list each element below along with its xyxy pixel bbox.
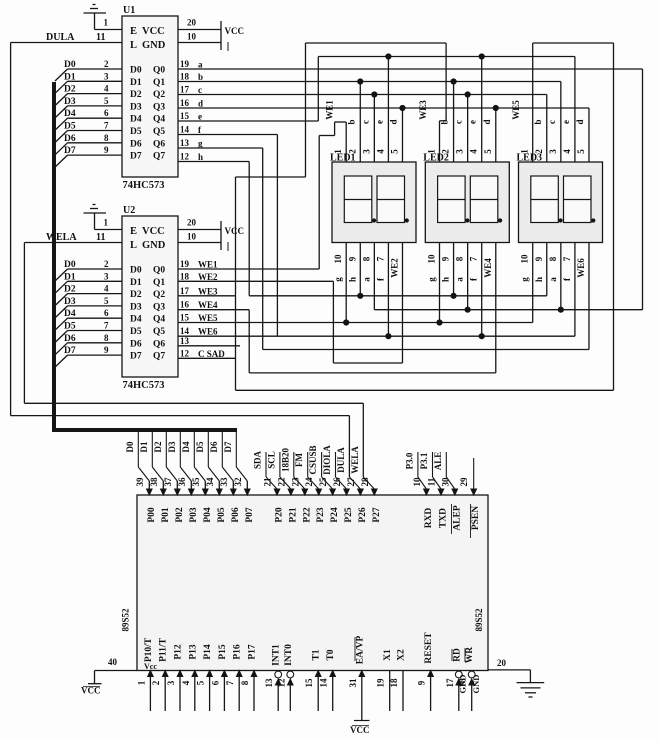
- svg-text:19: 19: [180, 259, 190, 269]
- svg-text:3: 3: [548, 149, 558, 154]
- svg-text:1: 1: [136, 680, 146, 685]
- svg-text:D2: D2: [153, 441, 163, 452]
- svg-text:P02: P02: [175, 507, 185, 523]
- svg-text:VCC: VCC: [350, 725, 370, 735]
- svg-text:b: b: [346, 119, 356, 124]
- svg-text:FM: FM: [294, 453, 304, 467]
- svg-text:D6: D6: [130, 139, 142, 149]
- svg-text:WELA: WELA: [46, 232, 77, 243]
- svg-text:D1: D1: [64, 72, 76, 82]
- svg-text:D7: D7: [64, 146, 76, 156]
- svg-text:WE6: WE6: [198, 327, 218, 337]
- svg-text:19: 19: [180, 59, 190, 69]
- svg-text:8: 8: [240, 680, 250, 685]
- svg-text:4: 4: [104, 284, 109, 294]
- svg-text:39: 39: [135, 477, 145, 487]
- svg-text:P01: P01: [161, 507, 171, 523]
- svg-text:25: 25: [318, 477, 328, 487]
- svg-text:a: a: [361, 277, 371, 282]
- svg-text:36: 36: [177, 477, 187, 487]
- svg-text:1: 1: [520, 149, 530, 154]
- svg-text:Q1: Q1: [153, 78, 165, 88]
- svg-text:D7: D7: [64, 346, 76, 356]
- svg-text:P05: P05: [217, 507, 227, 523]
- svg-text:3: 3: [361, 149, 371, 154]
- svg-text:U2: U2: [123, 205, 135, 216]
- svg-text:10: 10: [187, 232, 197, 242]
- svg-text:D0: D0: [64, 60, 76, 70]
- svg-text:38: 38: [149, 477, 159, 487]
- svg-text:P06: P06: [231, 507, 241, 523]
- svg-text:P26: P26: [358, 507, 368, 523]
- svg-text:8: 8: [104, 133, 109, 143]
- svg-text:D6: D6: [130, 339, 142, 349]
- svg-text:7: 7: [104, 121, 109, 131]
- svg-text:D2: D2: [64, 285, 76, 295]
- svg-text:8: 8: [361, 256, 371, 261]
- svg-text:10: 10: [187, 32, 197, 42]
- svg-text:VCC: VCC: [81, 686, 101, 696]
- svg-text:Q7: Q7: [153, 352, 165, 362]
- svg-text:X1: X1: [383, 649, 393, 661]
- svg-text:11: 11: [96, 232, 105, 243]
- svg-text:Q4: Q4: [153, 115, 165, 125]
- svg-text:WELA: WELA: [350, 446, 360, 474]
- svg-text:WE6: WE6: [576, 258, 586, 278]
- svg-text:Q0: Q0: [153, 266, 165, 276]
- svg-text:8: 8: [104, 333, 109, 343]
- svg-text:Q2: Q2: [153, 90, 165, 100]
- svg-text:WE4: WE4: [483, 258, 493, 278]
- svg-text:ALEP: ALEP: [452, 505, 462, 531]
- svg-text:D0: D0: [130, 66, 142, 76]
- svg-text:7: 7: [225, 680, 235, 685]
- svg-text:15: 15: [304, 678, 314, 688]
- svg-text:17: 17: [180, 286, 190, 296]
- svg-text:5: 5: [196, 680, 206, 685]
- svg-text:VCC: VCC: [225, 226, 245, 236]
- svg-text:g: g: [520, 277, 530, 282]
- svg-text:T0: T0: [326, 649, 336, 660]
- svg-text:18: 18: [180, 271, 190, 281]
- svg-text:C SAD: C SAD: [198, 349, 225, 359]
- svg-text:P04: P04: [203, 507, 213, 523]
- svg-text:11: 11: [427, 477, 437, 486]
- svg-text:9: 9: [441, 256, 451, 261]
- svg-text:21: 21: [263, 477, 273, 487]
- svg-text:L: L: [130, 40, 137, 51]
- svg-text:WE4: WE4: [198, 300, 218, 310]
- svg-text:Q4: Q4: [153, 315, 165, 325]
- svg-text:13: 13: [180, 336, 190, 346]
- svg-text:D6: D6: [64, 334, 76, 344]
- svg-text:6: 6: [104, 308, 109, 318]
- svg-text:D4: D4: [181, 441, 191, 452]
- svg-text:20: 20: [497, 658, 507, 668]
- svg-text:Vcc: Vcc: [144, 662, 157, 671]
- svg-text:D3: D3: [64, 97, 76, 107]
- svg-text:h: h: [347, 277, 357, 282]
- svg-text:D2: D2: [130, 290, 142, 300]
- svg-text:7: 7: [562, 256, 572, 261]
- svg-text:P07: P07: [245, 507, 255, 523]
- svg-text:P3.0: P3.0: [404, 452, 414, 469]
- svg-text:17: 17: [180, 85, 190, 95]
- svg-text:Q5: Q5: [153, 327, 165, 337]
- svg-text:2: 2: [347, 149, 357, 154]
- svg-text:5: 5: [104, 96, 109, 106]
- svg-text:18: 18: [389, 678, 399, 688]
- svg-text:32: 32: [233, 477, 243, 487]
- svg-text:P11/T: P11/T: [159, 637, 169, 661]
- svg-text:P21: P21: [288, 507, 298, 523]
- svg-text:8: 8: [548, 256, 558, 261]
- svg-text:2: 2: [104, 259, 109, 269]
- svg-text:16: 16: [180, 300, 190, 310]
- svg-text:1: 1: [333, 149, 343, 154]
- svg-text:h: h: [534, 277, 544, 282]
- svg-text:a: a: [455, 277, 465, 282]
- svg-text:D4: D4: [64, 309, 76, 319]
- svg-text:40: 40: [108, 657, 118, 667]
- svg-text:GND: GND: [142, 40, 166, 51]
- svg-text:WE1: WE1: [198, 260, 218, 270]
- svg-text:15: 15: [180, 313, 190, 323]
- svg-text:14: 14: [180, 125, 190, 135]
- svg-text:SCL: SCL: [266, 451, 276, 469]
- svg-text:c: c: [198, 85, 202, 95]
- svg-text:13: 13: [180, 138, 190, 148]
- svg-text:3: 3: [104, 71, 109, 81]
- svg-text:D7: D7: [223, 441, 233, 452]
- svg-text:WE5: WE5: [198, 313, 218, 323]
- svg-text:c: c: [360, 120, 370, 124]
- svg-text:74HC573: 74HC573: [123, 380, 165, 391]
- svg-text:13: 13: [264, 678, 274, 688]
- svg-text:d: d: [388, 119, 398, 124]
- svg-text:35: 35: [191, 477, 201, 487]
- svg-text:E: E: [130, 226, 137, 237]
- svg-text:7: 7: [375, 256, 385, 261]
- svg-text:f: f: [375, 277, 385, 281]
- svg-text:f: f: [198, 125, 202, 135]
- svg-text:CSUSB: CSUSB: [308, 445, 318, 474]
- svg-text:D2: D2: [64, 85, 76, 95]
- svg-text:P00: P00: [147, 507, 157, 523]
- svg-text:D3: D3: [130, 302, 142, 312]
- svg-text:D5: D5: [195, 441, 205, 452]
- svg-text:29: 29: [459, 477, 469, 487]
- svg-text:1: 1: [427, 149, 437, 154]
- svg-text:D0: D0: [130, 266, 142, 276]
- svg-text:D0: D0: [125, 441, 135, 452]
- svg-text:89S52: 89S52: [121, 608, 131, 632]
- svg-text:7: 7: [104, 321, 109, 331]
- svg-text:Q3: Q3: [153, 302, 165, 312]
- svg-text:PSEN: PSEN: [471, 506, 481, 530]
- svg-text:INT1: INT1: [272, 644, 282, 666]
- svg-text:D1: D1: [130, 78, 142, 88]
- svg-text:4: 4: [104, 84, 109, 94]
- svg-text:VCC: VCC: [225, 26, 245, 36]
- svg-text:7: 7: [469, 256, 479, 261]
- svg-text:d: d: [198, 99, 203, 109]
- svg-text:D6: D6: [64, 134, 76, 144]
- svg-text:Q3: Q3: [153, 102, 165, 112]
- svg-text:33: 33: [219, 477, 229, 487]
- svg-text:Q0: Q0: [153, 66, 165, 76]
- svg-text:RXD: RXD: [424, 508, 434, 529]
- svg-text:RD: RD: [452, 648, 462, 662]
- svg-text:L: L: [130, 240, 137, 251]
- svg-text:ALE: ALE: [433, 452, 443, 471]
- svg-text:Q6: Q6: [153, 139, 165, 149]
- svg-text:4: 4: [181, 680, 191, 685]
- svg-text:D3: D3: [130, 102, 142, 112]
- svg-text:a: a: [198, 60, 203, 70]
- svg-text:12: 12: [180, 152, 190, 162]
- svg-text:DULA: DULA: [336, 447, 346, 473]
- svg-text:T1: T1: [312, 649, 322, 660]
- svg-text:P3.1: P3.1: [419, 452, 429, 469]
- svg-text:g: g: [198, 139, 203, 149]
- svg-text:9: 9: [347, 256, 357, 261]
- svg-text:D3: D3: [64, 297, 76, 307]
- svg-text:D5: D5: [130, 327, 142, 337]
- svg-text:15: 15: [180, 111, 190, 121]
- svg-text:14: 14: [319, 678, 329, 688]
- svg-text:D4: D4: [64, 109, 76, 119]
- svg-text:9: 9: [104, 345, 109, 355]
- svg-text:e: e: [374, 120, 384, 124]
- svg-text:17: 17: [445, 678, 455, 688]
- svg-text:Q5: Q5: [153, 127, 165, 137]
- svg-text:P25: P25: [344, 507, 354, 523]
- svg-text:6: 6: [210, 680, 220, 685]
- svg-text:h: h: [198, 152, 203, 162]
- svg-text:h: h: [441, 277, 451, 282]
- svg-text:E: E: [130, 26, 137, 37]
- svg-text:TXD: TXD: [439, 508, 449, 528]
- svg-text:DULA: DULA: [46, 32, 75, 43]
- svg-text:g: g: [333, 277, 343, 282]
- svg-text:D4: D4: [130, 115, 142, 125]
- svg-text:9: 9: [104, 145, 109, 155]
- svg-text:GND: GND: [142, 240, 166, 251]
- svg-text:c: c: [547, 120, 557, 124]
- svg-text:SDA: SDA: [253, 451, 263, 470]
- svg-text:D5: D5: [130, 127, 142, 137]
- svg-text:12: 12: [180, 348, 190, 358]
- svg-text:f: f: [562, 277, 572, 281]
- svg-text:GND: GND: [458, 675, 468, 694]
- svg-text:D5: D5: [64, 322, 76, 332]
- svg-text:10: 10: [427, 254, 437, 264]
- svg-text:28: 28: [360, 477, 370, 487]
- svg-text:10: 10: [412, 477, 422, 487]
- svg-text:2: 2: [151, 680, 161, 685]
- svg-text:D2: D2: [130, 90, 142, 100]
- svg-text:5: 5: [389, 149, 399, 154]
- svg-text:P10/T: P10/T: [144, 637, 154, 662]
- svg-text:VCC: VCC: [142, 226, 165, 237]
- svg-text:INT0: INT0: [284, 644, 294, 666]
- svg-text:WE2: WE2: [198, 272, 218, 282]
- svg-text:4: 4: [375, 149, 385, 154]
- svg-text:9: 9: [534, 256, 544, 261]
- svg-text:e: e: [561, 120, 571, 124]
- svg-text:5: 5: [483, 149, 493, 154]
- svg-text:26: 26: [332, 477, 342, 487]
- svg-text:4: 4: [469, 149, 479, 154]
- svg-text:P03: P03: [189, 507, 199, 523]
- svg-text:37: 37: [163, 477, 173, 487]
- svg-text:12: 12: [276, 678, 286, 688]
- svg-text:10: 10: [520, 254, 530, 264]
- svg-text:9: 9: [417, 680, 427, 685]
- svg-text:P20: P20: [275, 507, 285, 523]
- svg-text:8: 8: [455, 256, 465, 261]
- svg-text:f: f: [469, 277, 479, 281]
- svg-text:D7: D7: [130, 352, 142, 362]
- svg-text:D3: D3: [167, 441, 177, 452]
- svg-text:RESET: RESET: [424, 632, 434, 664]
- svg-text:P13: P13: [188, 644, 198, 660]
- svg-text:D0: D0: [64, 260, 76, 270]
- svg-text:D1: D1: [64, 272, 76, 282]
- svg-text:23: 23: [290, 477, 300, 487]
- svg-text:5: 5: [104, 296, 109, 306]
- svg-text:6: 6: [104, 108, 109, 118]
- svg-text:P22: P22: [302, 507, 312, 523]
- svg-text:P16: P16: [233, 644, 243, 660]
- svg-text:WR: WR: [465, 647, 475, 664]
- svg-text:18: 18: [180, 72, 190, 82]
- svg-text:P15: P15: [218, 644, 228, 660]
- svg-text:D4: D4: [130, 315, 142, 325]
- svg-text:5: 5: [576, 149, 586, 154]
- svg-text:11: 11: [96, 32, 105, 43]
- svg-text:3: 3: [455, 149, 465, 154]
- svg-text:P12: P12: [174, 644, 184, 660]
- svg-text:b: b: [533, 119, 543, 124]
- svg-text:g: g: [427, 277, 437, 282]
- svg-text:18B20: 18B20: [280, 448, 290, 473]
- svg-text:c: c: [454, 120, 464, 124]
- svg-text:31: 31: [348, 678, 358, 688]
- svg-text:16: 16: [180, 98, 190, 108]
- svg-text:24: 24: [304, 477, 314, 487]
- svg-text:2: 2: [441, 149, 451, 154]
- svg-text:d: d: [575, 119, 585, 124]
- svg-text:19: 19: [376, 678, 386, 688]
- svg-text:1: 1: [104, 218, 109, 228]
- svg-text:Q6: Q6: [153, 339, 165, 349]
- svg-text:GND: GND: [471, 675, 481, 694]
- svg-text:22: 22: [276, 477, 286, 487]
- svg-text:30: 30: [440, 477, 450, 487]
- svg-text:WE3: WE3: [198, 286, 218, 296]
- svg-text:10: 10: [333, 254, 343, 264]
- svg-text:Q7: Q7: [153, 152, 165, 162]
- svg-text:27: 27: [346, 477, 356, 487]
- svg-text:D5: D5: [64, 122, 76, 132]
- svg-text:1: 1: [104, 18, 109, 28]
- svg-text:e: e: [198, 112, 202, 122]
- svg-text:P23: P23: [316, 507, 326, 523]
- svg-text:74HC573: 74HC573: [123, 180, 165, 191]
- svg-text:P14: P14: [203, 644, 213, 660]
- svg-text:WE5: WE5: [511, 100, 521, 120]
- svg-text:P17: P17: [248, 644, 258, 660]
- svg-text:2: 2: [104, 59, 109, 69]
- svg-text:Q1: Q1: [153, 278, 165, 288]
- svg-text:d: d: [482, 119, 492, 124]
- svg-text:D6: D6: [209, 441, 219, 452]
- svg-text:14: 14: [180, 326, 190, 336]
- svg-text:34: 34: [205, 477, 215, 487]
- svg-text:3: 3: [104, 271, 109, 281]
- svg-text:DIOLA: DIOLA: [322, 445, 332, 475]
- svg-text:Q2: Q2: [153, 290, 165, 300]
- svg-text:3: 3: [166, 680, 176, 685]
- svg-text:2: 2: [534, 149, 544, 154]
- svg-text:20: 20: [187, 218, 197, 228]
- svg-text:89S52: 89S52: [474, 608, 484, 632]
- svg-text:EA/VP: EA/VP: [355, 636, 365, 665]
- svg-text:4: 4: [562, 149, 572, 154]
- svg-text:D1: D1: [130, 278, 142, 288]
- svg-text:P27: P27: [372, 507, 382, 523]
- svg-text:VCC: VCC: [142, 26, 165, 37]
- svg-text:D7: D7: [130, 152, 142, 162]
- svg-text:D1: D1: [139, 441, 149, 452]
- svg-text:WE3: WE3: [418, 100, 428, 120]
- svg-text:X2: X2: [397, 649, 407, 661]
- svg-text:WE1: WE1: [325, 100, 335, 120]
- svg-text:20: 20: [187, 18, 197, 28]
- svg-text:b: b: [198, 72, 203, 82]
- svg-text:WE2: WE2: [389, 258, 399, 278]
- svg-text:P24: P24: [330, 507, 340, 523]
- svg-text:a: a: [548, 277, 558, 282]
- svg-text:e: e: [468, 120, 478, 124]
- svg-text:U1: U1: [123, 5, 135, 16]
